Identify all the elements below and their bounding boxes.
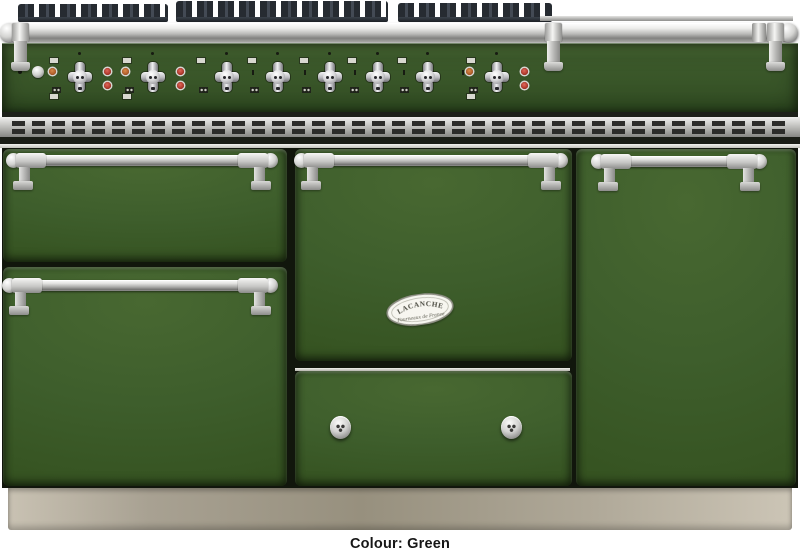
- handle-foot: [251, 306, 271, 315]
- panel-label-chip: [300, 58, 308, 63]
- knob-center-dot: [374, 76, 377, 79]
- handle-foot: [9, 306, 29, 315]
- panel-tick: [354, 70, 356, 75]
- burner-symbol-chip: [469, 87, 478, 93]
- burner-knob: [68, 62, 92, 92]
- knob-pointer-dot: [328, 52, 331, 55]
- rail-collar: [752, 23, 766, 42]
- knob-bottom-mark: [225, 87, 229, 90]
- burner-knob: [318, 62, 342, 92]
- handle-foot: [301, 181, 321, 190]
- knob-center: [371, 70, 385, 84]
- right-oven-door-handle: [591, 154, 767, 194]
- handle-foot: [13, 181, 33, 190]
- rail-bracket-sleeve: [545, 23, 562, 42]
- knob-center-dot: [498, 76, 501, 79]
- knob-bottom-mark: [495, 87, 499, 90]
- knob-pointer-dot: [276, 52, 279, 55]
- knob-center-dot: [223, 76, 226, 79]
- handle-foot: [740, 182, 760, 191]
- burner-knob: [266, 62, 290, 92]
- indicator-light-red: [177, 68, 184, 75]
- burner-knob: [416, 62, 440, 92]
- knob-bottom-mark: [376, 87, 380, 90]
- knob-center: [73, 70, 87, 84]
- knob-center-dot: [154, 76, 157, 79]
- middle-oven-door-handle: [294, 153, 568, 193]
- cooktop-grate-right: [398, 3, 552, 22]
- panel-label-chip: [50, 94, 58, 99]
- knob-pointer-dot: [426, 52, 429, 55]
- plinth: [8, 488, 792, 530]
- panel-label-chip: [348, 58, 356, 63]
- knob-bottom-mark: [276, 87, 280, 90]
- knob-pointer-dot: [78, 52, 81, 55]
- indicator-light-red: [521, 82, 528, 89]
- burner-symbol-chip: [250, 87, 259, 93]
- indicator-light-red: [104, 68, 111, 75]
- knob-pointer-dot: [376, 52, 379, 55]
- handle-mount: [238, 278, 268, 293]
- knob-bottom-mark: [78, 87, 82, 90]
- grille-slot-row: [12, 121, 788, 126]
- left-top-drawer-handle: [6, 153, 278, 193]
- burner-knob: [215, 62, 239, 92]
- knob-bottom-mark: [151, 87, 155, 90]
- panel-label-chip: [467, 58, 475, 63]
- burner-knob: [366, 62, 390, 92]
- knob-center-dot: [331, 76, 334, 79]
- knob-center: [421, 70, 435, 84]
- handle-bar: [8, 280, 272, 291]
- range-cooker-photo: LACANCHE Fourneaux de France Colour: Gre…: [0, 0, 800, 555]
- handle-mount: [16, 153, 46, 168]
- panel-label-chip: [398, 58, 406, 63]
- knob-bottom-mark: [328, 87, 332, 90]
- grille-slot-row: [12, 129, 788, 134]
- handle-mount: [528, 153, 558, 168]
- knob-pointer-dot: [495, 52, 498, 55]
- indicator-light-red: [521, 68, 528, 75]
- indicator-light-orange: [49, 68, 56, 75]
- burner-symbol-chip: [400, 87, 409, 93]
- left-bottom-door-handle: [2, 278, 278, 318]
- rail-bracket: [547, 41, 560, 64]
- knob-center: [146, 70, 160, 84]
- handle-foot: [541, 181, 561, 190]
- burner-symbol-chip: [125, 87, 134, 93]
- rail-bracket-foot: [544, 62, 563, 71]
- drawer-knob-right: [501, 416, 522, 439]
- towel-rail: [2, 23, 798, 42]
- drawer-top-highlight: [295, 368, 570, 371]
- knob-center: [271, 70, 285, 84]
- ignition-button: [32, 66, 44, 78]
- handle-foot: [598, 182, 618, 191]
- handle-mount: [238, 153, 268, 168]
- knob-center-dot: [149, 76, 152, 79]
- indicator-light-red: [104, 82, 111, 89]
- knob-center: [323, 70, 337, 84]
- right-oven-door: [576, 149, 796, 486]
- rail-bracket-sleeve: [767, 23, 784, 42]
- knob-center-dot: [493, 76, 496, 79]
- panel-label-chip: [123, 94, 131, 99]
- handle-mount: [601, 154, 631, 169]
- panel-label-chip: [248, 58, 256, 63]
- knob-center-dot: [429, 76, 432, 79]
- burner-symbol-chip: [52, 87, 61, 93]
- knob-pointer-dot: [225, 52, 228, 55]
- burner-symbol-chip: [350, 87, 359, 93]
- caption-text: Colour: Green: [0, 536, 800, 552]
- panel-label-chip: [197, 58, 205, 63]
- panel-label-chip: [50, 58, 58, 63]
- knob-pointer-dot: [151, 52, 154, 55]
- rail-bracket: [769, 41, 782, 64]
- indicator-light-orange: [466, 68, 473, 75]
- panel-label-chip: [467, 94, 475, 99]
- handle-mount: [727, 154, 757, 169]
- panel-tick: [252, 70, 254, 75]
- knob-center-dot: [76, 76, 79, 79]
- burner-symbol-chip: [199, 87, 208, 93]
- rail-bracket: [14, 41, 27, 64]
- rail-bracket-sleeve: [12, 23, 29, 42]
- drawer-knob-left: [330, 416, 351, 439]
- knob-center-dot: [424, 76, 427, 79]
- burner-symbol-chip: [302, 87, 311, 93]
- knob-center: [220, 70, 234, 84]
- knob-center-dot: [279, 76, 282, 79]
- panel-tick: [403, 70, 405, 75]
- knob-center-dot: [274, 76, 277, 79]
- knob-center-dot: [326, 76, 329, 79]
- rail-back-bar: [540, 16, 793, 21]
- knob-center: [490, 70, 504, 84]
- knob-center-dot: [379, 76, 382, 79]
- rail-bracket-foot: [11, 62, 30, 71]
- grille-bottom-trim: [0, 137, 800, 144]
- control-panel: [2, 43, 798, 112]
- indicator-light-orange: [122, 68, 129, 75]
- knob-center-dot: [228, 76, 231, 79]
- handle-bar: [300, 155, 562, 166]
- handle-mount: [304, 153, 334, 168]
- indicator-light-red: [177, 82, 184, 89]
- vent-grille: [0, 117, 800, 137]
- handle-bar: [12, 155, 272, 166]
- handle-mount: [12, 278, 42, 293]
- rail-bracket-foot: [766, 62, 785, 71]
- handle-foot: [251, 181, 271, 190]
- panel-tick: [304, 70, 306, 75]
- burner-knob: [485, 62, 509, 92]
- panel-tick: [462, 70, 464, 75]
- panel-label-chip: [123, 58, 131, 63]
- knob-bottom-mark: [426, 87, 430, 90]
- knob-center-dot: [81, 76, 84, 79]
- cooktop-grate-left: [18, 4, 168, 22]
- burner-knob: [141, 62, 165, 92]
- cooktop-grate-middle: [176, 1, 388, 22]
